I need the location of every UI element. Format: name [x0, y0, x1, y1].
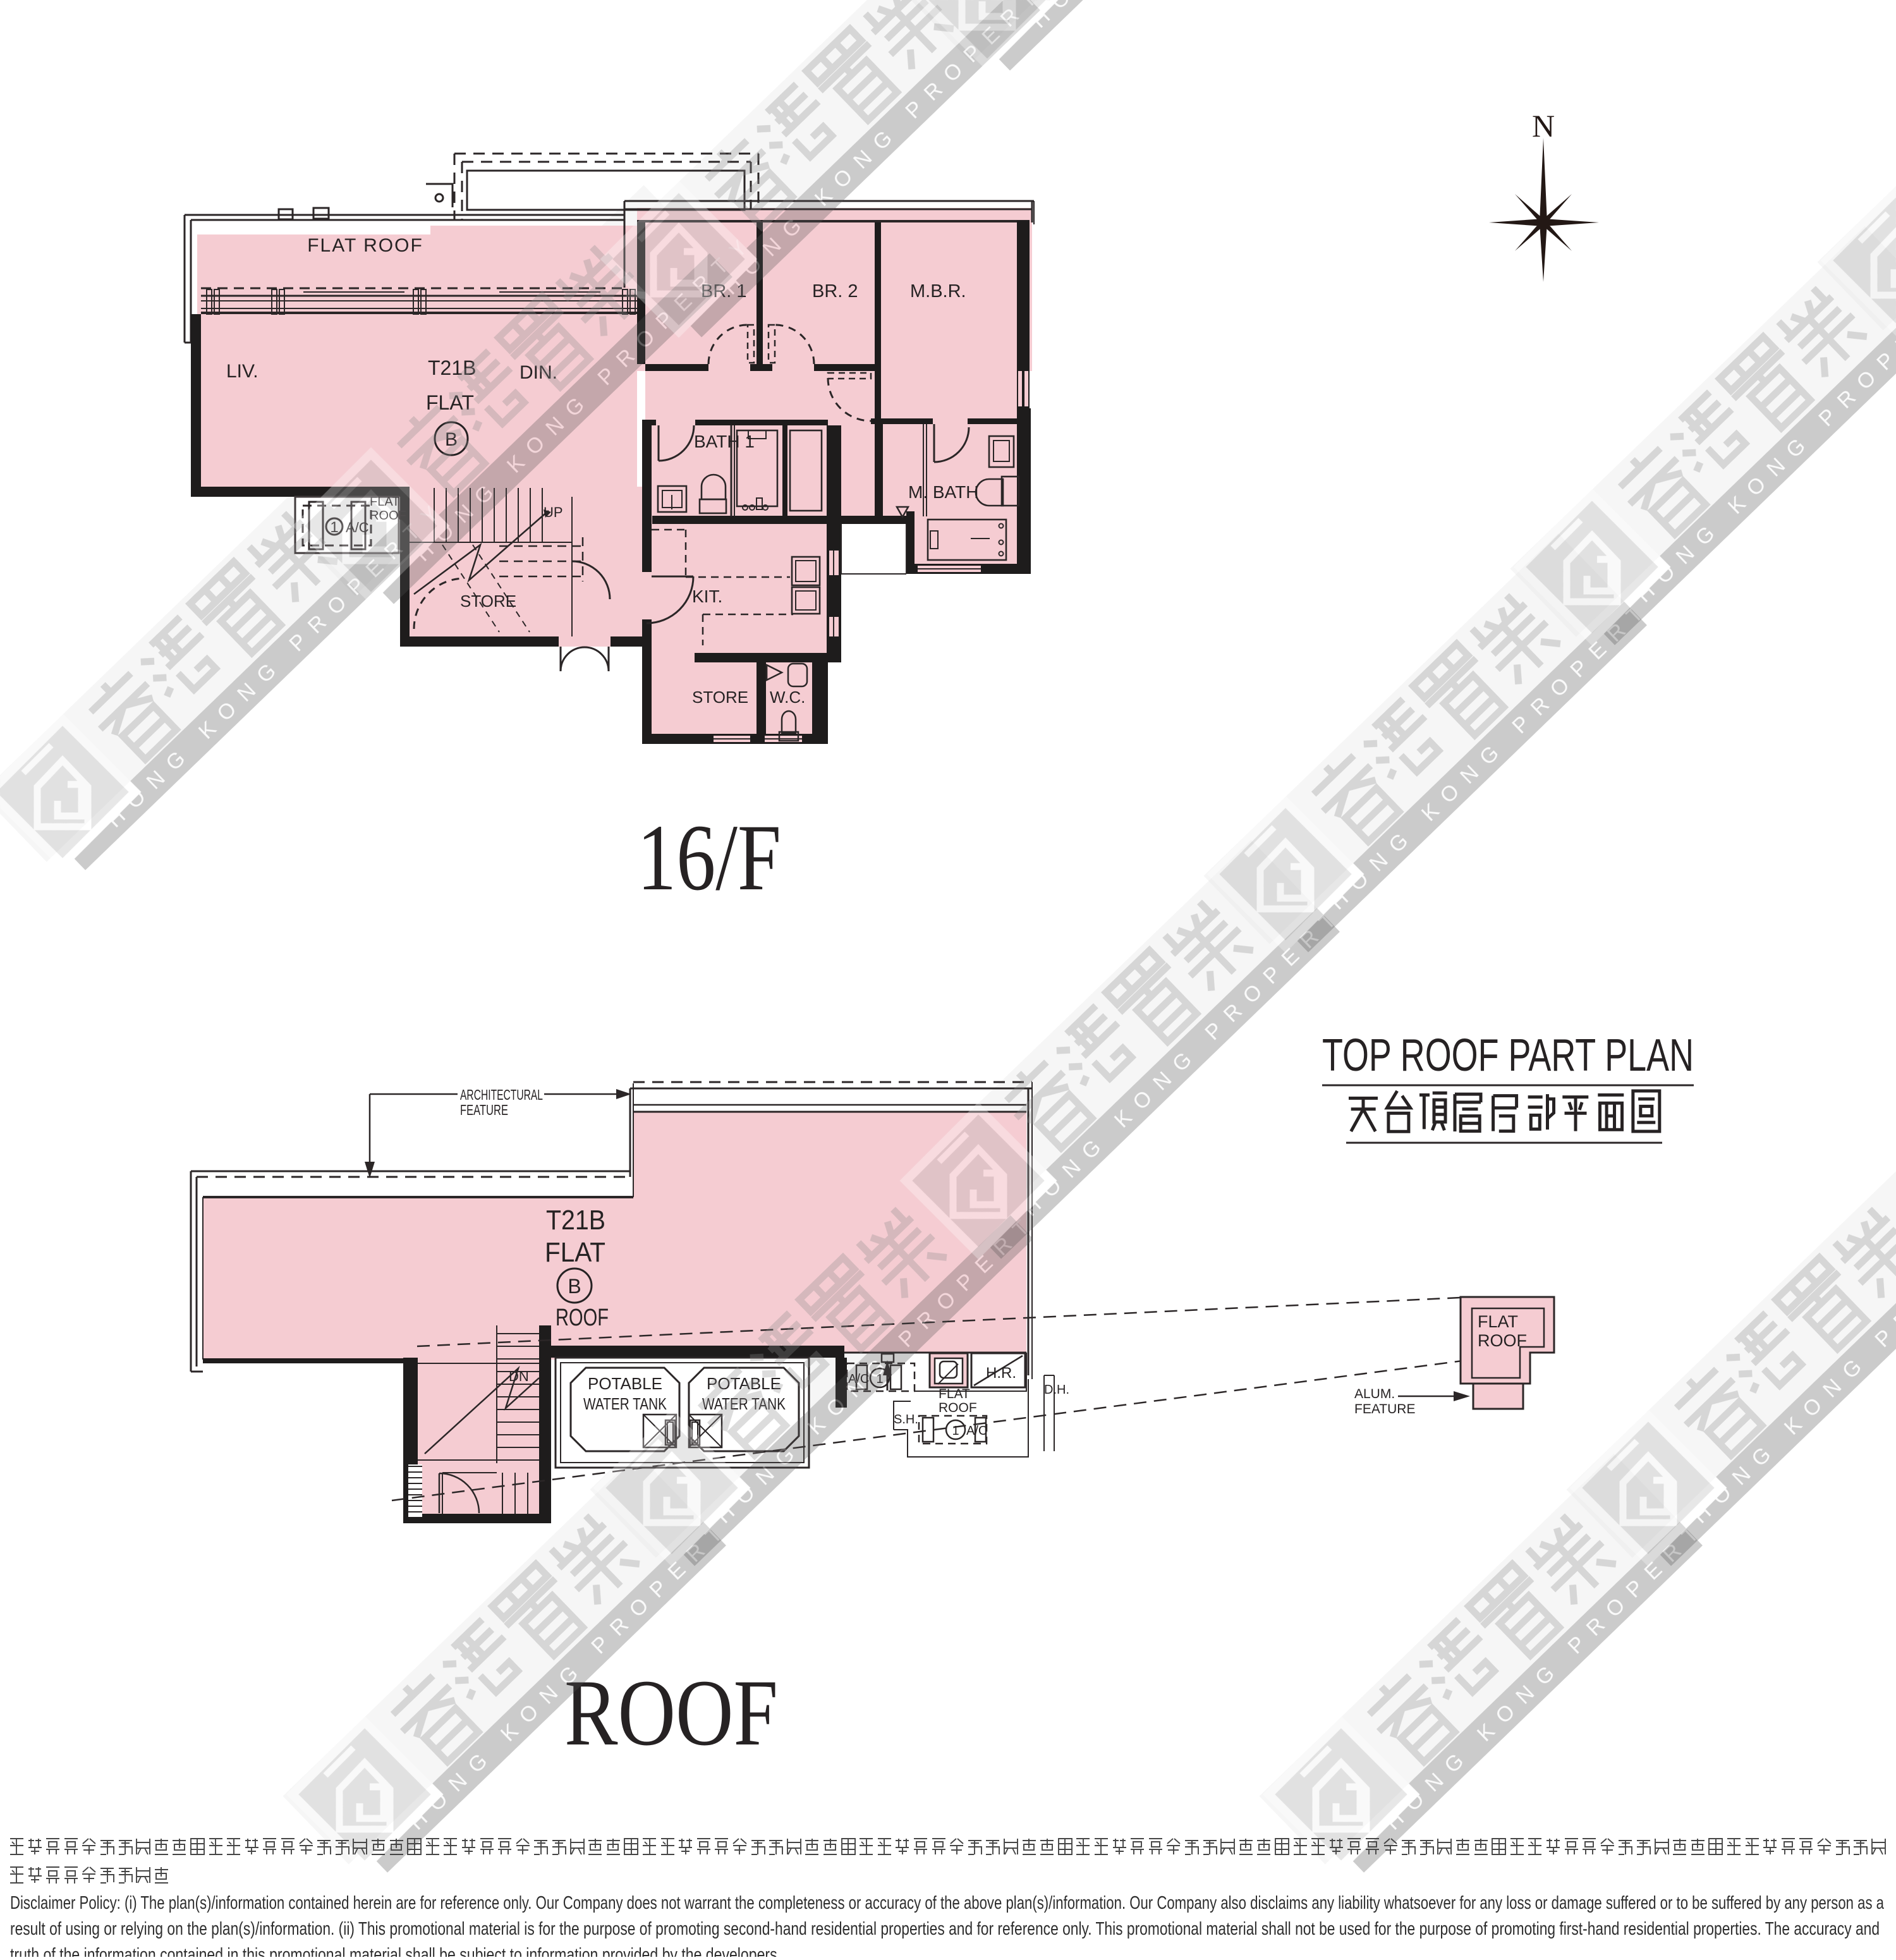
- svg-text:S.H.: S.H.: [894, 1413, 918, 1427]
- svg-text:M.B.R.: M.B.R.: [910, 281, 966, 301]
- svg-text:ROOF: ROOF: [556, 1305, 609, 1331]
- svg-text:truth of the information conta: truth of the information contained in th…: [10, 1945, 781, 1957]
- svg-text:B: B: [568, 1275, 581, 1298]
- svg-text:ROOF: ROOF: [939, 1401, 977, 1415]
- svg-text:H.R.: H.R.: [986, 1365, 1016, 1382]
- svg-text:result of using or relying on: result of using or relying on the plan(s…: [10, 1919, 1880, 1939]
- svg-text:ALUM.: ALUM.: [1354, 1387, 1395, 1401]
- svg-text:FLAT: FLAT: [939, 1387, 970, 1401]
- svg-text:W.C.: W.C.: [770, 688, 805, 707]
- svg-text:KIT.: KIT.: [692, 587, 722, 606]
- svg-text:LIV.: LIV.: [226, 361, 258, 382]
- svg-text:Disclaimer Policy: (i) The pla: Disclaimer Policy: (i) The plan(s)/infor…: [10, 1893, 1885, 1913]
- svg-text:DN: DN: [509, 1368, 529, 1384]
- svg-text:UP: UP: [544, 504, 563, 520]
- svg-text:16/F: 16/F: [637, 805, 781, 910]
- svg-text:FLAT: FLAT: [545, 1237, 605, 1268]
- svg-text:ROOF: ROOF: [1478, 1331, 1527, 1350]
- svg-text:ROOF: ROOF: [564, 1660, 778, 1765]
- svg-text:M. BATH: M. BATH: [908, 482, 978, 502]
- svg-text:HONG KONG PROPERTY: HONG KONG PROPERTY: [1027, 0, 1376, 33]
- svg-text:POTABLE: POTABLE: [588, 1374, 662, 1393]
- svg-text:FEATURE: FEATURE: [1354, 1402, 1415, 1416]
- svg-text:STORE: STORE: [692, 688, 748, 707]
- svg-text:FEATURE: FEATURE: [460, 1102, 508, 1118]
- svg-text:A/C: A/C: [966, 1424, 987, 1438]
- svg-text:FLAT: FLAT: [1478, 1312, 1518, 1331]
- svg-text:STORE: STORE: [460, 592, 516, 611]
- svg-text:T21B: T21B: [546, 1205, 605, 1236]
- svg-text:WATER TANK: WATER TANK: [583, 1394, 667, 1413]
- svg-text:BR. 2: BR. 2: [812, 281, 858, 301]
- svg-text:BATH 1: BATH 1: [694, 432, 755, 451]
- svg-text:TOP ROOF PART PLAN: TOP ROOF PART PLAN: [1322, 1030, 1694, 1081]
- svg-text:ARCHITECTURAL: ARCHITECTURAL: [460, 1087, 543, 1103]
- svg-text:FLAT ROOF: FLAT ROOF: [307, 235, 423, 256]
- svg-text:D.H.: D.H.: [1044, 1383, 1069, 1397]
